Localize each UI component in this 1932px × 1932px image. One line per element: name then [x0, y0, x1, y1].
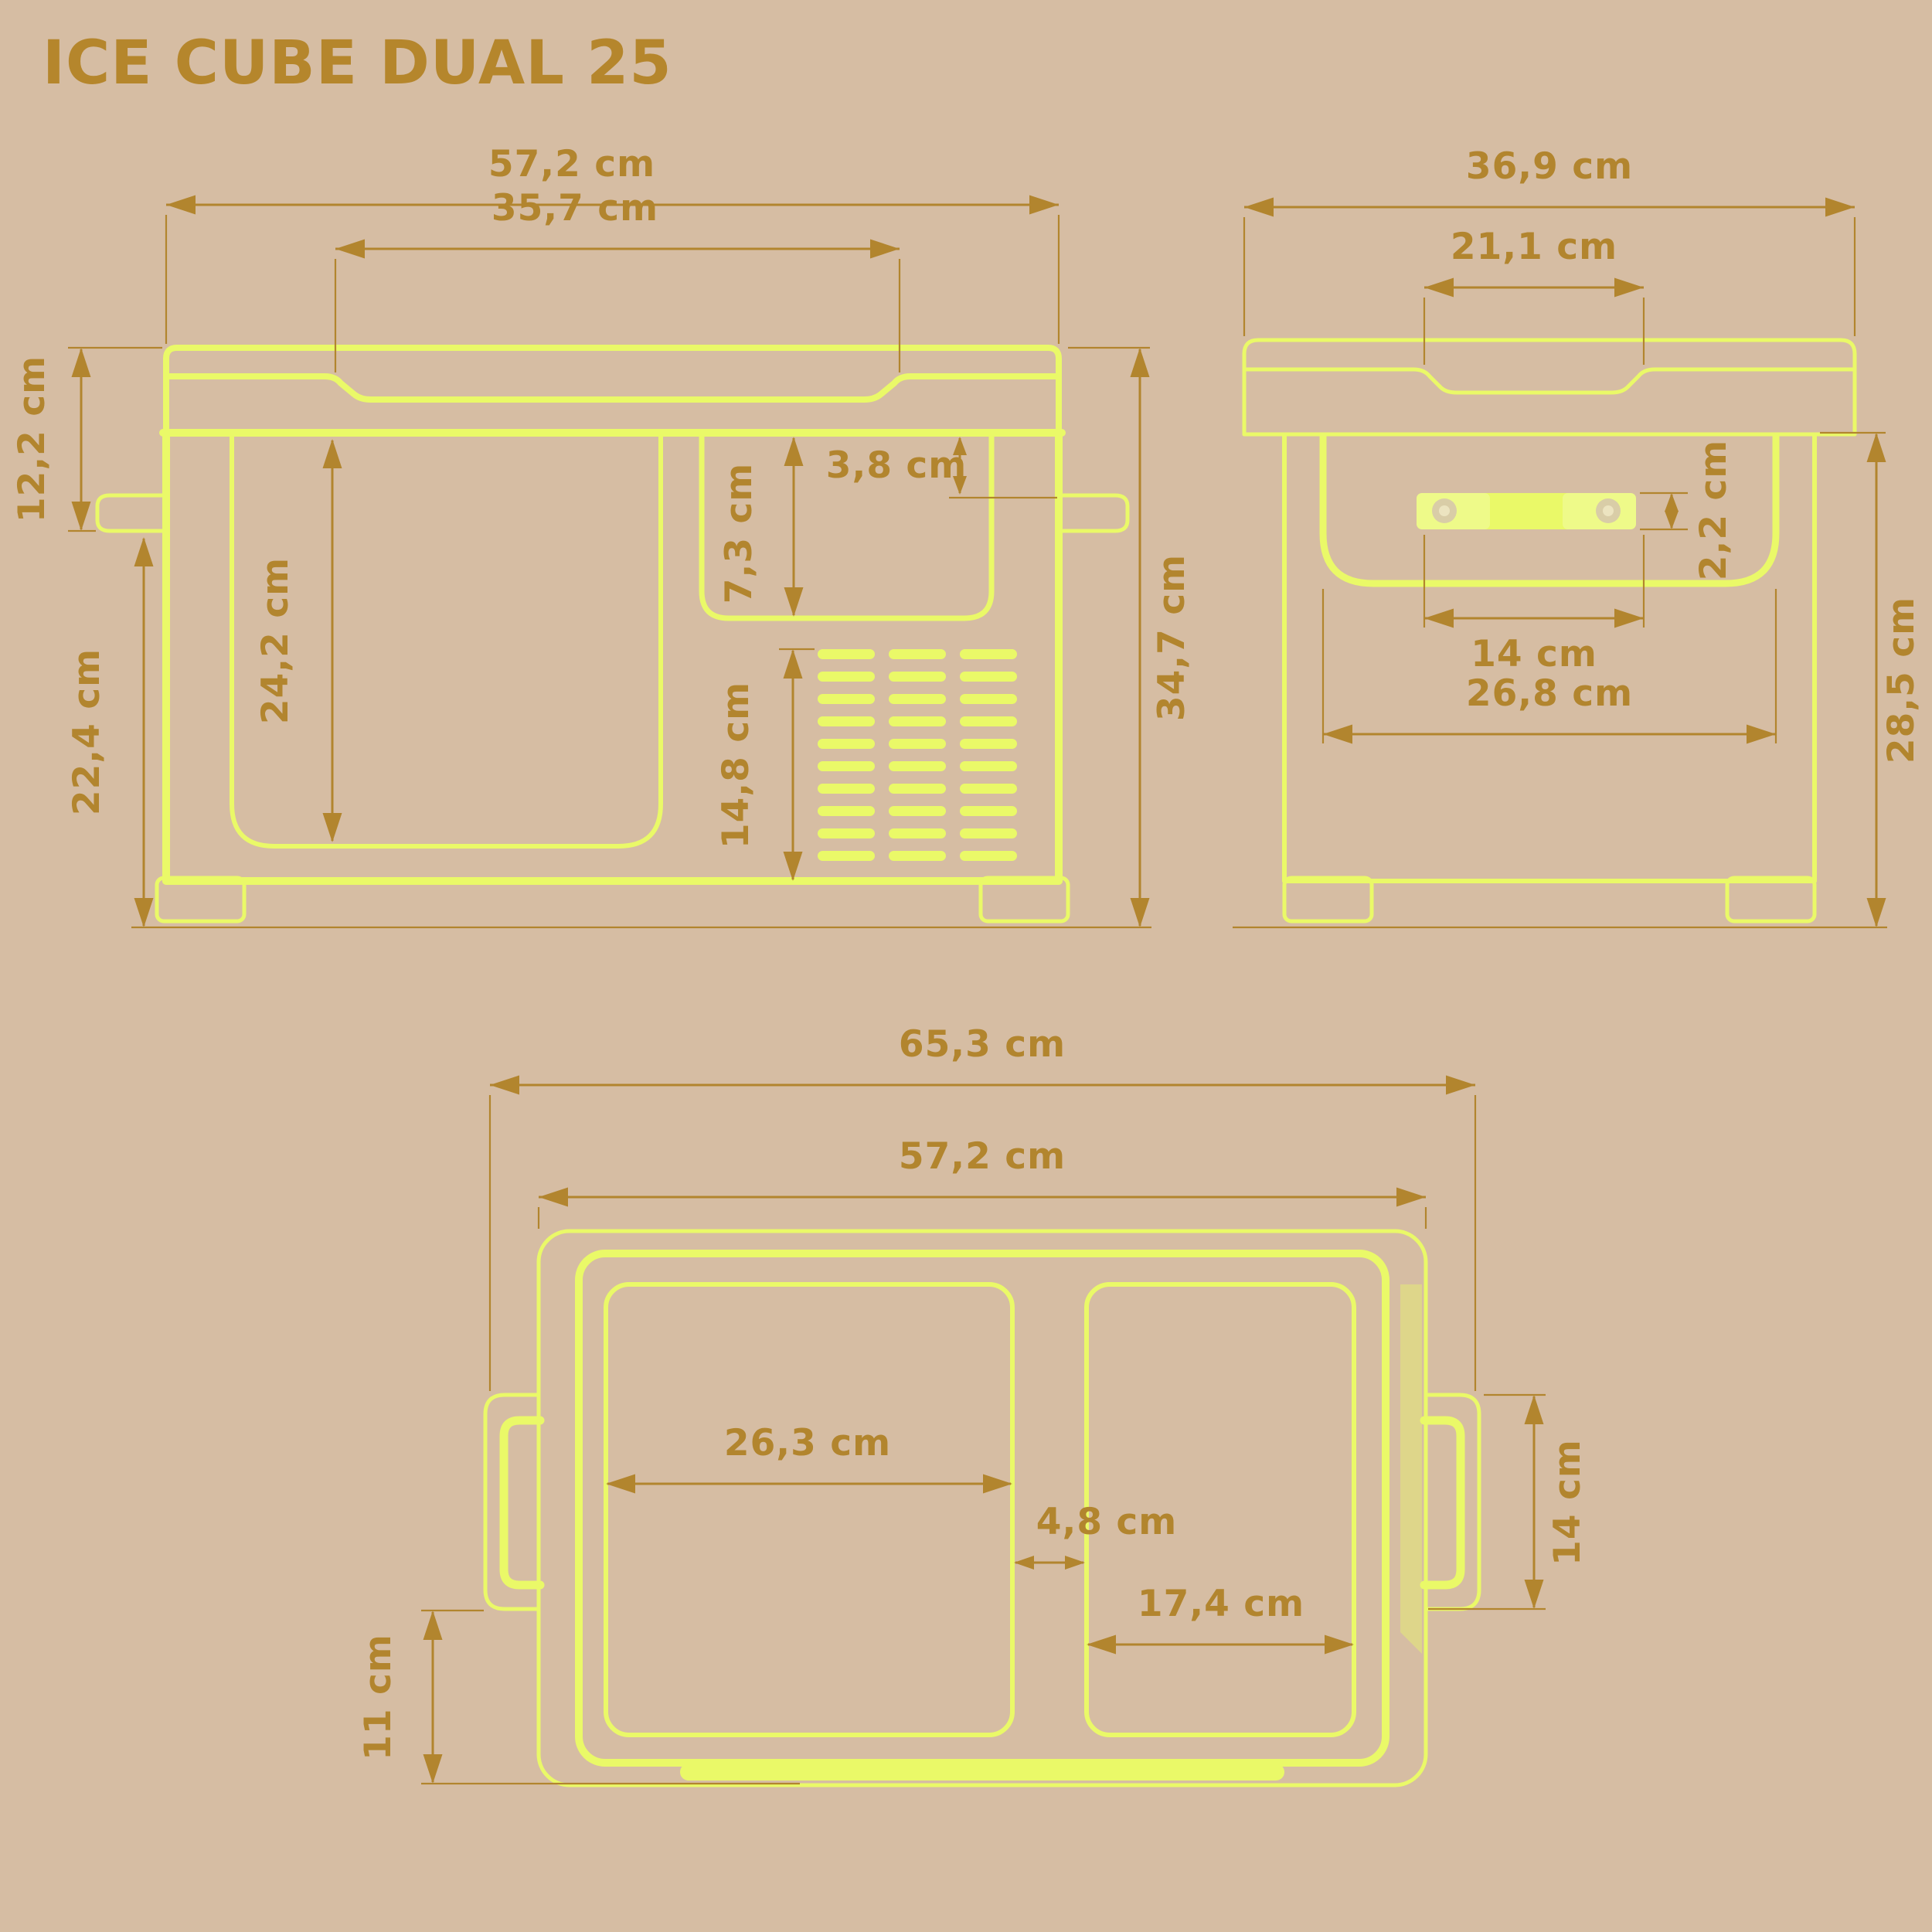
dim-label: 26,8 cm [1466, 672, 1633, 715]
front-dim-total-height: 34,7 cm [1068, 348, 1193, 927]
dim-label: 3,8 cm [826, 444, 967, 487]
top-left-handle-outer [485, 1395, 539, 1609]
dim-label: 57,2 cm [899, 1135, 1066, 1178]
top-right-handle-inner [1424, 1420, 1461, 1585]
front-right-handle [1059, 495, 1128, 531]
diagram-canvas: ICE CUBE DUAL 25 [0, 0, 1932, 1932]
front-dim-lower-height: 22,4 cm [66, 537, 154, 927]
top-dim-lid-gap: 4,8 cm [1014, 1501, 1177, 1570]
top-left-handle-inner [504, 1420, 540, 1585]
top-dim-right-lid-width: 17,4 cm [1087, 1583, 1354, 1655]
side-dim-handle-height: 2,2 cm [1640, 440, 1735, 580]
spec-diagram: ICE CUBE DUAL 25 [0, 0, 1932, 1932]
front-dim-vent-height: 14,8 cm [715, 649, 815, 881]
front-left-handle [97, 495, 166, 531]
dim-label: 26,3 cm [724, 1422, 891, 1464]
front-dim-door-height: 24,2 cm [254, 439, 342, 842]
dim-label: 34,7 cm [1151, 554, 1193, 721]
top-dim-rear-offset: 11 cm [357, 1611, 484, 1784]
vent-column-2 [889, 649, 946, 861]
side-left-foot [1284, 878, 1372, 921]
dim-label: 35,7 cm [492, 187, 658, 230]
front-vent-grille [818, 649, 1017, 861]
dim-label: 65,3 cm [899, 1023, 1066, 1066]
front-dim-lid-height: 12,2 cm [11, 348, 162, 531]
side-right-foot [1727, 878, 1815, 921]
dim-label: 14,8 cm [715, 682, 757, 849]
front-dim-outer-width: 57,2 cm [166, 143, 1059, 344]
top-inner-frame [579, 1253, 1386, 1763]
front-dim-pocket-depth: 7,3 cm [718, 437, 804, 617]
top-dim-left-lid-width: 26,3 cm [606, 1422, 1012, 1494]
side-view: 36,9 cm 21,1 cm 2,2 cm 14 cm 26,8 cm [1233, 145, 1923, 927]
dim-label: 57,2 cm [488, 143, 655, 185]
top-dim-outer-width: 65,3 cm [490, 1023, 1475, 1391]
dim-label: 17,4 cm [1138, 1583, 1304, 1625]
front-lid-recess-line [166, 376, 1059, 400]
dim-label: 28,5 cm [1880, 597, 1923, 764]
front-dim-handle-offset: 3,8 cm [826, 437, 1057, 498]
side-lid-outline [1244, 340, 1855, 434]
side-dim-body-height: 28,5 cm [1820, 433, 1923, 927]
side-dim-lid-recess: 21,1 cm [1424, 226, 1644, 365]
front-lid-outline [166, 348, 1059, 434]
top-right-handle-outer [1426, 1395, 1479, 1609]
top-hinge-strip [680, 1764, 1284, 1781]
top-left-compartment-lid [606, 1284, 1012, 1735]
top-view: 65,3 cm 57,2 cm 26,3 cm 4,8 cm 17,4 cm [357, 1023, 1589, 1785]
side-lid-recess-line [1244, 369, 1855, 393]
top-outer-shell [539, 1231, 1426, 1785]
handle-screw-right-center [1603, 505, 1614, 516]
dim-label: 14 cm [1546, 1439, 1589, 1566]
dim-label: 11 cm [357, 1634, 400, 1760]
dim-label: 12,2 cm [11, 355, 53, 522]
dim-label: 14 cm [1471, 633, 1597, 675]
front-view: 57,2 cm 35,7 cm 12,2 cm 22,4 cm 24,2 cm [11, 143, 1193, 927]
dim-label: 22,4 cm [66, 648, 108, 815]
side-dim-handle-length: 14 cm [1424, 535, 1644, 675]
vent-column-1 [818, 649, 875, 861]
top-tinted-edge-band [1400, 1284, 1422, 1654]
dim-label: 4,8 cm [1036, 1501, 1177, 1543]
dim-label: 24,2 cm [254, 557, 297, 724]
vent-column-3 [960, 649, 1017, 861]
top-dim-handle-length: 14 cm [1428, 1395, 1589, 1609]
dim-label: 7,3 cm [718, 463, 760, 604]
top-dim-body-width: 57,2 cm [539, 1135, 1426, 1229]
page-title: ICE CUBE DUAL 25 [43, 29, 672, 98]
handle-screw-left-center [1439, 505, 1450, 516]
dim-label: 21,1 cm [1451, 226, 1617, 268]
dim-label: 2,2 cm [1692, 440, 1735, 580]
dim-label: 36,9 cm [1466, 145, 1633, 188]
